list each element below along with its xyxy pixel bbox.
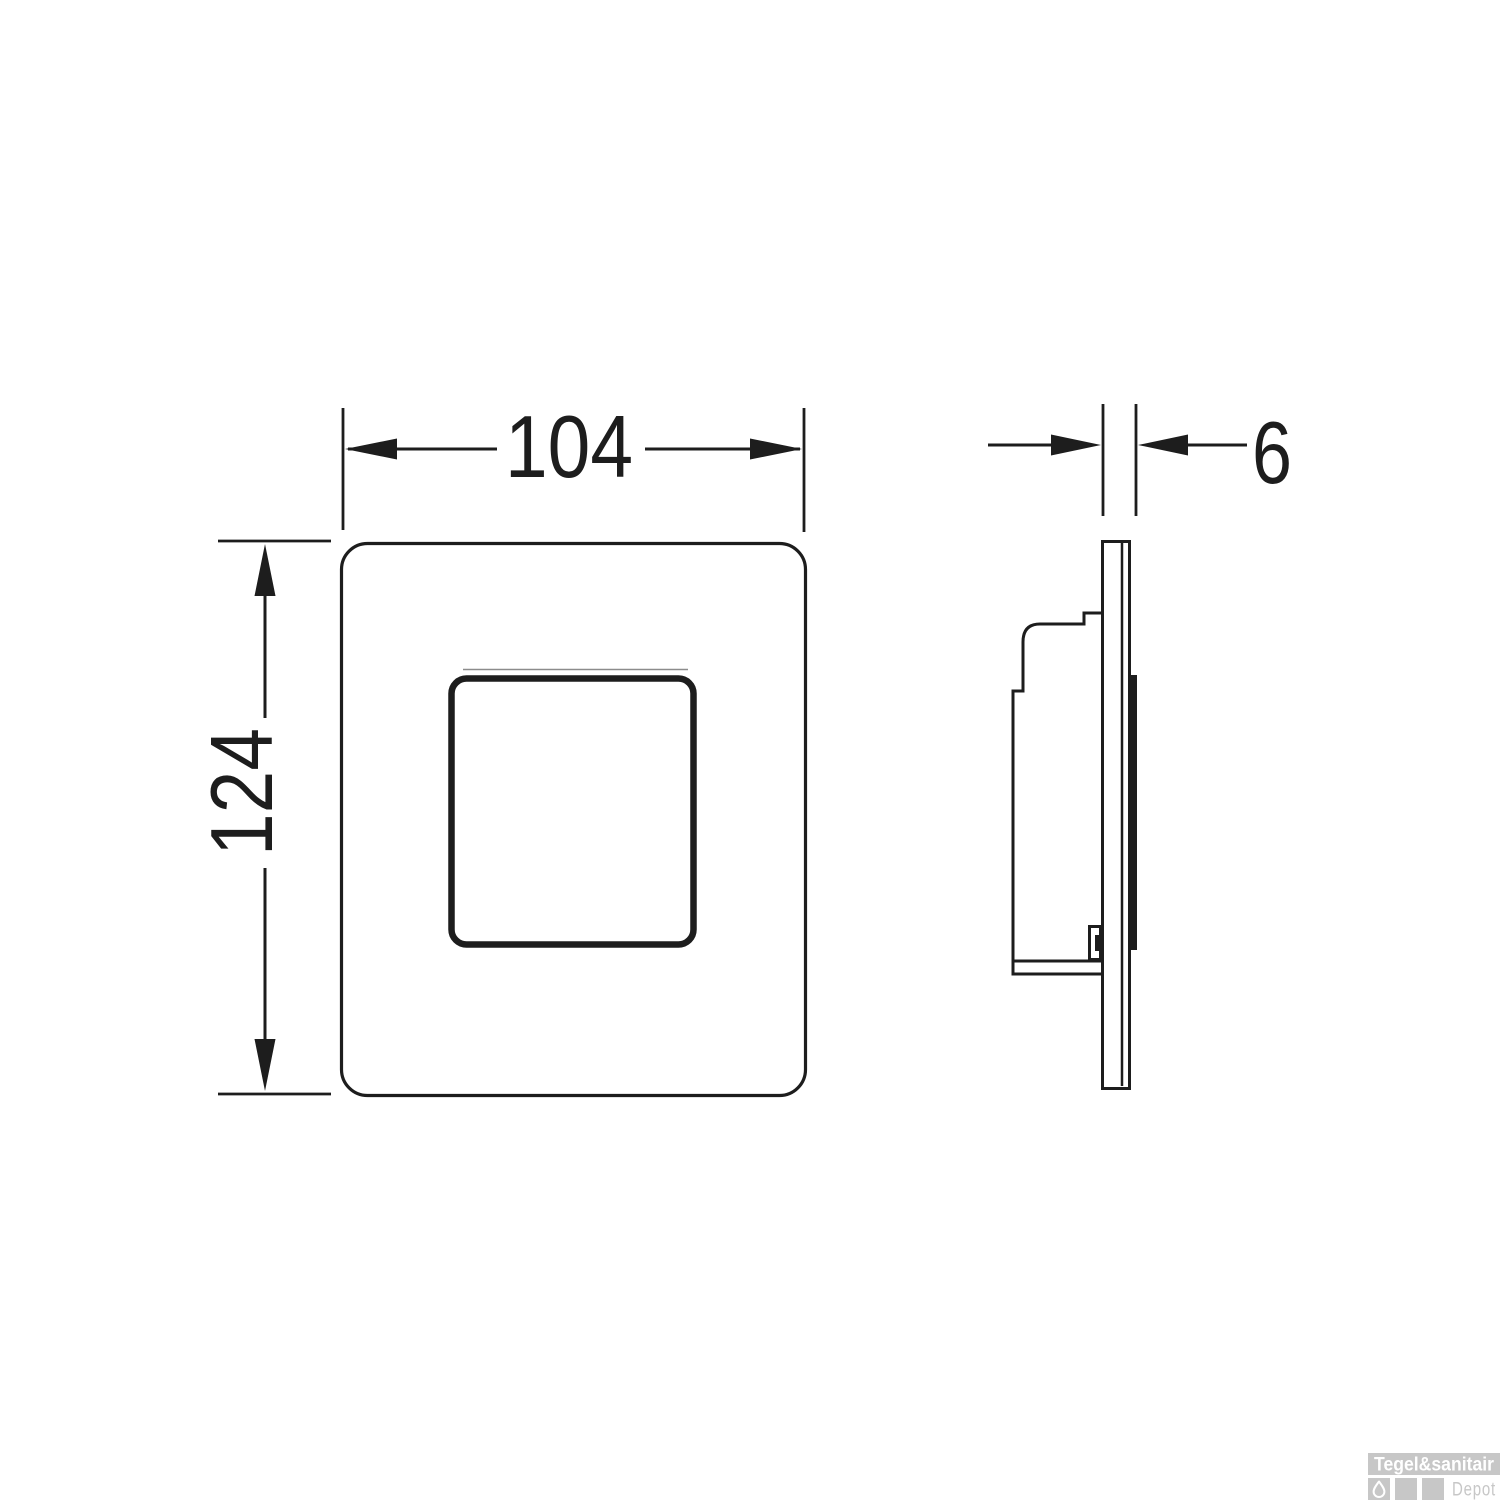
front-plate-outline xyxy=(342,544,806,1096)
dimension-height: 124 xyxy=(192,541,331,1094)
arrowhead-depth-left xyxy=(1051,435,1101,456)
brand-square-2 xyxy=(1395,1478,1417,1500)
brand-text: Tegel&sanitair xyxy=(1374,1455,1495,1476)
side-plate-outline xyxy=(1103,542,1130,1089)
side-button-profile xyxy=(1131,675,1137,950)
mounting-bracket-profile xyxy=(1013,613,1101,974)
dimension-width: 104 xyxy=(343,397,804,532)
brand-square-3 xyxy=(1422,1478,1444,1500)
side-view xyxy=(1013,542,1137,1089)
depth-dimension-label: 6 xyxy=(1252,403,1292,502)
height-dimension-label: 124 xyxy=(192,728,291,856)
dimension-depth: 6 xyxy=(988,403,1292,516)
arrowhead-depth-right xyxy=(1138,435,1188,456)
flush-button-outline xyxy=(452,679,694,945)
depot-text: Depot xyxy=(1452,1479,1496,1500)
watermark-logo: Tegel&sanitair Depot xyxy=(1368,1453,1500,1500)
drawing-page: 104 124 xyxy=(0,0,1500,1500)
technical-drawing: 104 124 xyxy=(0,0,1500,1500)
arrowhead-height-top xyxy=(255,544,276,596)
arrowhead-height-bottom xyxy=(255,1039,276,1091)
arrowhead-width-left xyxy=(345,439,397,460)
arrowhead-width-right xyxy=(750,439,802,460)
width-dimension-label: 104 xyxy=(505,397,633,496)
front-view xyxy=(342,544,806,1096)
